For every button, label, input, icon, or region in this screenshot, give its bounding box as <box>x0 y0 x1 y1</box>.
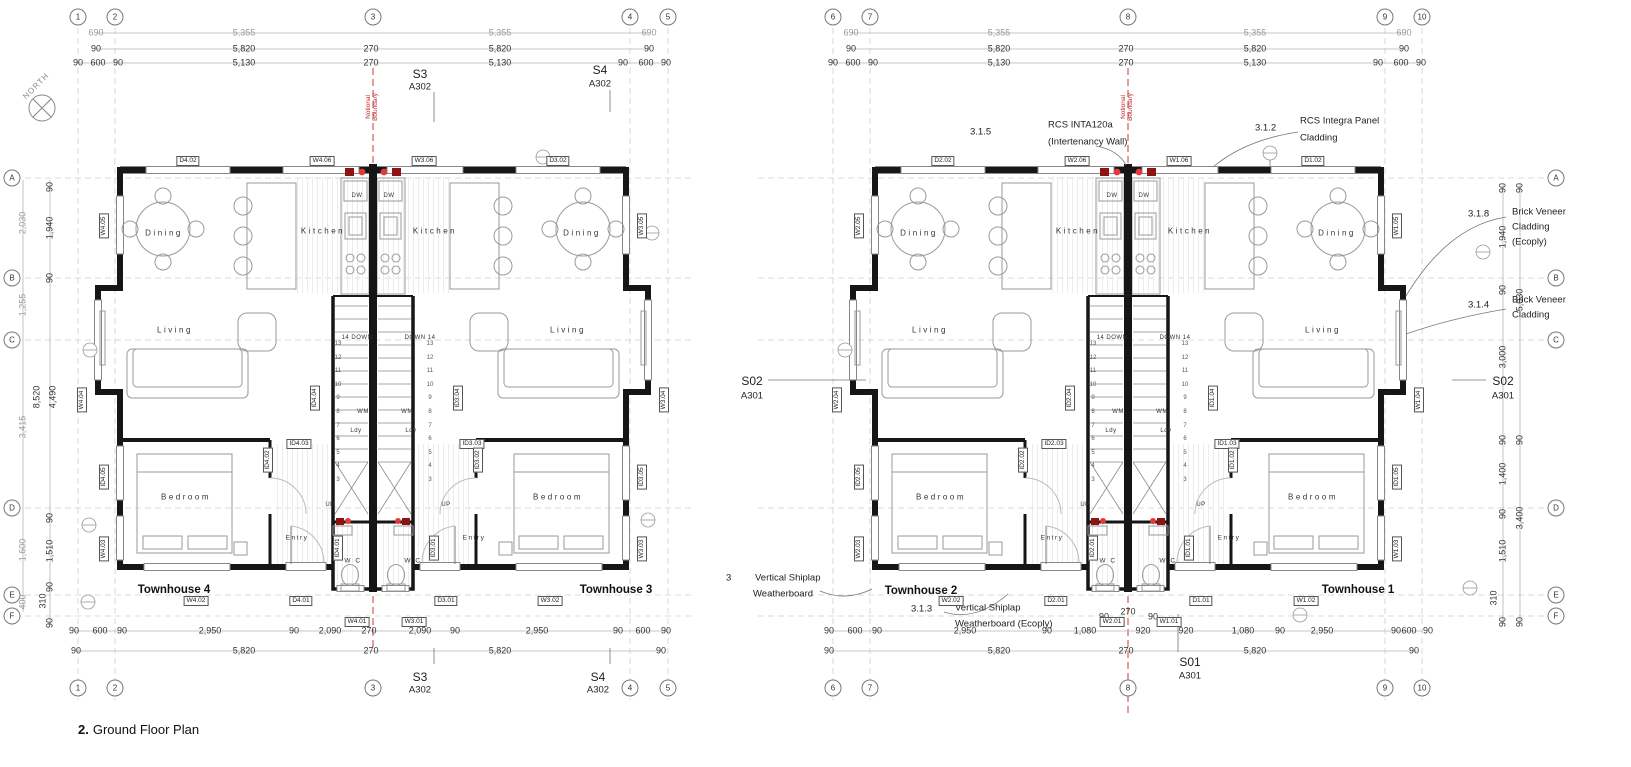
stair-tread-number: 8 <box>333 409 343 415</box>
dim-label: 90 <box>1516 435 1525 445</box>
grid-letter-bubble: F <box>4 608 21 625</box>
grid-letter-bubble: C <box>4 332 21 349</box>
stair-tread-number: 12 <box>1088 355 1098 361</box>
dim-label: 5,355 <box>988 29 1011 38</box>
room-label-living: Living <box>1305 326 1341 335</box>
room-label-wc: W C <box>1159 558 1176 565</box>
grid-letter-bubble: D <box>4 500 21 517</box>
dim-label: 90 <box>613 627 623 636</box>
window-tag: W1.03 <box>1392 537 1402 562</box>
door-tag: ID4.01 <box>333 535 343 560</box>
stair-tread-number: 6 <box>1088 436 1098 442</box>
stair-tread-number: 13 <box>333 341 343 347</box>
boundary-line: Notional <box>1120 95 1127 119</box>
dim-label: 1,255 <box>19 294 28 317</box>
window-tag: W2.04 <box>832 388 842 413</box>
room-label-living: Living <box>912 326 948 335</box>
window-tag: W1.06 <box>1167 156 1192 166</box>
stair-tread-number: 7 <box>1088 423 1098 429</box>
dim-label: 90 <box>113 59 123 68</box>
window-tag: W3.06 <box>412 156 437 166</box>
townhouse-label: Townhouse 1 <box>1322 584 1395 596</box>
stair-direction-label: 14 DOWN <box>342 335 373 341</box>
room-label-entry: Entry <box>1218 535 1241 542</box>
window-tag: W4.06 <box>310 156 335 166</box>
dim-label: 90 <box>846 45 856 54</box>
grid-bubble: 6 <box>825 9 842 26</box>
grid-bubble: 4 <box>622 680 639 697</box>
window-tag: W2.06 <box>1065 156 1090 166</box>
stair-tread-number: 9 <box>333 395 343 401</box>
door-tag: ID1.05 <box>1392 464 1402 489</box>
dim-label: 90 <box>450 627 460 636</box>
dim-label: 920 <box>1178 627 1193 636</box>
door-tag: ID2.02 <box>1018 447 1028 472</box>
annotation-ref: 3.1.3 <box>911 604 932 615</box>
dim-label: 90 <box>289 627 299 636</box>
door-tag: ID2.03 <box>1041 439 1066 449</box>
annotation-text: RCS Integra Panel <box>1300 116 1379 127</box>
stair-tread-number: 8 <box>425 409 435 415</box>
grid-bubble: 1 <box>70 9 87 26</box>
window-tag: W1.05 <box>1392 214 1402 239</box>
dim-label: 600 <box>847 627 862 636</box>
section-sheet: A302 <box>589 79 611 90</box>
room-label-dining: Dining <box>900 229 938 238</box>
door-tag: ID1.02 <box>1228 447 1238 472</box>
dim-label: 90 <box>661 627 671 636</box>
stair-tread-number: 9 <box>425 395 435 401</box>
dim-label: 90 <box>824 627 834 636</box>
section-marker: S02 <box>1492 374 1513 388</box>
stair-tread-number: 8 <box>1180 409 1190 415</box>
window-tag: W2.05 <box>854 214 864 239</box>
window-tag: W3.05 <box>637 214 647 239</box>
room-label-laundry: Ldy <box>1105 428 1116 434</box>
appliance-label-dw: DW <box>352 193 363 199</box>
section-marker: S3 <box>413 67 428 81</box>
dim-label: 600 <box>90 59 105 68</box>
window-tag: W4.02 <box>184 596 209 606</box>
stair-tread-number: 9 <box>1180 395 1190 401</box>
appliance-label-wm: WM <box>401 409 413 415</box>
door-tag: ID4.04 <box>310 385 320 410</box>
window-tag: W3.04 <box>659 388 669 413</box>
grid-letter-bubble: D <box>1548 500 1565 517</box>
appliance-label-dw: DW <box>384 193 395 199</box>
dim-label: 90 <box>69 627 79 636</box>
stair-tread-numbers: 131211109876543 <box>333 341 343 483</box>
dim-label: 90 <box>91 45 101 54</box>
section-sheet: A302 <box>409 82 431 93</box>
townhouse-label: Townhouse 4 <box>138 584 211 596</box>
stair-tread-number: 10 <box>425 382 435 388</box>
door-tag: D3.02 <box>546 156 569 166</box>
grid-bubble: 3 <box>365 9 382 26</box>
appliance-label-wm: WM <box>357 409 369 415</box>
dim-label: 2,950 <box>526 627 549 636</box>
grid-bubble: 2 <box>107 9 124 26</box>
dim-label: 270 <box>1118 59 1133 68</box>
stair-tread-number: 11 <box>333 368 343 374</box>
stair-tread-number: 3 <box>1180 477 1190 483</box>
annotation-text: Weatherboard <box>753 589 813 600</box>
room-label-bedroom: Bedroom <box>1288 493 1338 502</box>
dim-label: 270 <box>363 59 378 68</box>
dim-label: 5,130 <box>988 59 1011 68</box>
dim-label: 90 <box>1373 59 1383 68</box>
room-label-entry: Entry <box>1041 535 1064 542</box>
dim-label: 270 <box>363 45 378 54</box>
section-sheet: A301 <box>1492 391 1514 402</box>
grid-bubble: 1 <box>70 680 87 697</box>
dim-label: 2,090 <box>319 627 342 636</box>
townhouse-label: Townhouse 3 <box>580 584 653 596</box>
grid-bubble: 8 <box>1120 680 1137 697</box>
door-tag: D4.01 <box>289 596 312 606</box>
dim-label: 1,080 <box>1074 627 1097 636</box>
annotation-text: Vertical Shiplap <box>755 573 820 584</box>
stair-tread-number: 6 <box>425 436 435 442</box>
appliance-label-dw: DW <box>1139 193 1150 199</box>
stair-tread-number: 9 <box>1088 395 1098 401</box>
stair-tread-number: 6 <box>333 436 343 442</box>
door-tag: D2.02 <box>931 156 954 166</box>
dim-label: 600 <box>845 59 860 68</box>
dim-label: 90 <box>1416 59 1426 68</box>
dim-label: 90 <box>46 273 55 283</box>
section-sheet: A302 <box>409 685 431 696</box>
annotation-text: Cladding <box>1512 222 1550 233</box>
stair-tread-number: 6 <box>1180 436 1190 442</box>
room-label-wc: W C <box>404 558 421 565</box>
stair-tread-number: 4 <box>1088 463 1098 469</box>
room-label-laundry: Ldy <box>405 428 416 434</box>
stair-tread-number: 12 <box>333 355 343 361</box>
room-label-dining: Dining <box>563 229 601 238</box>
room-label-kitchen: Kitchen <box>1168 227 1212 236</box>
grid-letter-bubble: E <box>1548 587 1565 604</box>
room-label-dining: Dining <box>1318 229 1356 238</box>
window-tag: W1.02 <box>1294 596 1319 606</box>
room-label-bedroom: Bedroom <box>916 493 966 502</box>
stair-tread-numbers: 131211109876543 <box>425 341 435 483</box>
stair-tread-number: 3 <box>333 477 343 483</box>
window-tag: W2.03 <box>854 537 864 562</box>
grid-bubble: 3 <box>365 680 382 697</box>
boundary-line: Notional <box>365 95 372 119</box>
stair-up-label: UP <box>325 502 334 508</box>
section-marker: S02 <box>741 374 762 388</box>
dim-label: 5,820 <box>233 45 256 54</box>
dim-label: 600 <box>1393 59 1408 68</box>
dim-label: 5,820 <box>988 647 1011 656</box>
grid-bubble: 7 <box>862 9 879 26</box>
annotation-ref: 3 <box>726 573 731 584</box>
dim-label: 8,520 <box>33 386 42 409</box>
window-tag: W3.01 <box>402 617 427 627</box>
stair-tread-number: 3 <box>1088 477 1098 483</box>
dim-label: 5,820 <box>988 45 1011 54</box>
window-tag: W4.04 <box>77 388 87 413</box>
door-tag: ID3.05 <box>637 464 647 489</box>
dim-label: 90 <box>828 59 838 68</box>
stair-tread-number: 12 <box>1180 355 1190 361</box>
grid-bubble: 2 <box>107 680 124 697</box>
dim-label: 5,820 <box>233 647 256 656</box>
floor-plan-sheet: 1 2 3 4 5 6 7 8 9 10 1 2 3 4 5 6 7 8 9 1… <box>0 0 1631 767</box>
room-label-bedroom: Bedroom <box>161 493 211 502</box>
dim-label: 270 <box>363 647 378 656</box>
dim-label: 3,415 <box>19 416 28 439</box>
dim-label: 5,130 <box>489 59 512 68</box>
section-marker: S4 <box>591 670 606 684</box>
door-tag: D2.01 <box>1044 596 1067 606</box>
grid-letter-bubble: B <box>1548 270 1565 287</box>
dim-label: 90 <box>661 59 671 68</box>
dim-label: 5,355 <box>489 29 512 38</box>
dim-label: 1,080 <box>1232 627 1255 636</box>
grid-bubble: 9 <box>1377 680 1394 697</box>
dim-label: 90 <box>1499 617 1508 627</box>
room-label-kitchen: Kitchen <box>413 227 457 236</box>
dim-label: 5,130 <box>1244 59 1267 68</box>
dim-label: 90 <box>46 513 55 523</box>
section-marker: S3 <box>413 670 428 684</box>
stair-tread-number: 5 <box>333 450 343 456</box>
dim-label: 5,820 <box>1244 45 1267 54</box>
annotation-text: Cladding <box>1512 310 1550 321</box>
dim-label: 2,090 <box>409 627 432 636</box>
stair-tread-number: 11 <box>1088 368 1098 374</box>
door-tag: ID1.04 <box>1208 385 1218 410</box>
annotation-ref: 3.1.4 <box>1468 300 1489 311</box>
dim-label: 2,030 <box>19 212 28 235</box>
boundary-line: Boundary <box>1127 93 1134 121</box>
dim-label: 90 <box>71 647 81 656</box>
window-tag: W1.04 <box>1414 388 1424 413</box>
grid-bubble: 4 <box>622 9 639 26</box>
door-tag: ID2.04 <box>1065 385 1075 410</box>
stair-tread-number: 7 <box>1180 423 1190 429</box>
door-tag: ID4.02 <box>263 447 273 472</box>
dim-label: 90 <box>1499 183 1508 193</box>
dim-label: 90 <box>1423 627 1433 636</box>
dim-label: 90 <box>46 618 55 628</box>
window-tag: W3.02 <box>538 596 563 606</box>
room-label-kitchen: Kitchen <box>301 227 345 236</box>
grid-bubble: 7 <box>862 680 879 697</box>
window-tag: W4.05 <box>99 214 109 239</box>
dim-label: 90 <box>46 582 55 592</box>
dim-label: 90 <box>1275 627 1285 636</box>
annotation-text: Cladding <box>1300 133 1338 144</box>
stair-tread-number: 13 <box>1180 341 1190 347</box>
section-marker: S01 <box>1179 655 1200 669</box>
stair-tread-number: 5 <box>1180 450 1190 456</box>
annotation-text: RCS INTA120a <box>1048 120 1113 131</box>
dim-label: 1,940 <box>1499 226 1508 249</box>
dim-label: 400 <box>19 594 28 609</box>
annotation-text: Weatherboard (Ecoply) <box>955 619 1053 630</box>
dim-label: 2,950 <box>1311 627 1334 636</box>
dim-label: 270 <box>1118 647 1133 656</box>
grid-bubble: 5 <box>660 9 677 26</box>
room-label-laundry: Ldy <box>1160 428 1171 434</box>
room-label-laundry: Ldy <box>350 428 361 434</box>
dim-label: 3,000 <box>1499 346 1508 369</box>
sheet-title: 2.Ground Floor Plan <box>78 722 199 737</box>
grid-bubble: 10 <box>1414 680 1431 697</box>
dim-label: 90 <box>1391 627 1401 636</box>
dim-label: 3,400 <box>1516 507 1525 530</box>
room-label-dining: Dining <box>145 229 183 238</box>
stair-tread-number: 11 <box>1180 368 1190 374</box>
dim-label: 270 <box>1120 608 1135 617</box>
stair-tread-numbers: 131211109876543 <box>1180 341 1190 483</box>
door-tag: ID3.01 <box>429 535 439 560</box>
door-tag: D1.02 <box>1301 156 1324 166</box>
door-tag: D1.01 <box>1189 596 1212 606</box>
stair-tread-number: 10 <box>1180 382 1190 388</box>
stair-tread-number: 4 <box>1180 463 1190 469</box>
stair-tread-number: 8 <box>1088 409 1098 415</box>
appliance-label-wm: WM <box>1156 409 1168 415</box>
sheet-title-number: 2. <box>78 722 89 737</box>
stair-tread-number: 4 <box>333 463 343 469</box>
dim-label: 600 <box>635 627 650 636</box>
dim-label: 90 <box>1516 183 1525 193</box>
dim-label: 600 <box>92 627 107 636</box>
grid-bubble: 5 <box>660 680 677 697</box>
dim-label: 90 <box>117 627 127 636</box>
door-tag: ID3.02 <box>473 447 483 472</box>
dim-label: 690 <box>88 29 103 38</box>
stair-tread-number: 7 <box>333 423 343 429</box>
annotation-ref: 3.1.2 <box>1255 123 1276 134</box>
room-label-kitchen: Kitchen <box>1056 227 1100 236</box>
stair-tread-number: 3 <box>425 477 435 483</box>
window-tag: W4.01 <box>345 617 370 627</box>
dim-label: 90 <box>1499 509 1508 519</box>
dim-label: 2,950 <box>199 627 222 636</box>
dim-label: 1,510 <box>1499 540 1508 563</box>
stair-tread-number: 11 <box>425 368 435 374</box>
north-arrow-icon <box>29 95 55 121</box>
dim-label: 90 <box>1499 435 1508 445</box>
stair-tread-number: 7 <box>425 423 435 429</box>
dim-label: 90 <box>644 45 654 54</box>
stair-tread-numbers: 131211109876543 <box>1088 341 1098 483</box>
sheet-title-text: Ground Floor Plan <box>93 722 199 737</box>
window-tag: W4.03 <box>99 537 109 562</box>
dim-label: 690 <box>1396 29 1411 38</box>
dim-label: 690 <box>641 29 656 38</box>
dim-label: 90 <box>872 627 882 636</box>
door-tag: ID3.04 <box>453 385 463 410</box>
room-label-living: Living <box>550 326 586 335</box>
stair-tread-number: 4 <box>425 463 435 469</box>
dim-label: 90 <box>868 59 878 68</box>
room-label-bedroom: Bedroom <box>533 493 583 502</box>
grid-letter-bubble: A <box>1548 170 1565 187</box>
dim-label: 90 <box>1409 647 1419 656</box>
dim-label: 5,820 <box>1244 647 1267 656</box>
dim-label: 1,940 <box>46 217 55 240</box>
stair-tread-number: 10 <box>1088 382 1098 388</box>
annotation-ref: 3.1.8 <box>1468 209 1489 220</box>
room-label-entry: Entry <box>463 535 486 542</box>
dim-label: 1,510 <box>46 540 55 563</box>
stair-tread-number: 5 <box>425 450 435 456</box>
dim-label: 5,820 <box>489 647 512 656</box>
stair-up-label: UP <box>1080 502 1089 508</box>
grid-letter-bubble: A <box>4 170 21 187</box>
room-label-wc: W C <box>1099 558 1116 565</box>
dim-label: 90 <box>1399 45 1409 54</box>
stair-tread-number: 10 <box>333 382 343 388</box>
dim-label: 5,355 <box>233 29 256 38</box>
door-tag: ID4.05 <box>99 464 109 489</box>
door-tag: D3.01 <box>434 596 457 606</box>
room-label-wc: W C <box>344 558 361 565</box>
annotation-text: Brick Veneer <box>1512 207 1566 218</box>
window-tag: W1.01 <box>1157 617 1182 627</box>
annotation-text: Brick Veneer <box>1512 295 1566 306</box>
stair-tread-number: 5 <box>1088 450 1098 456</box>
dim-label: 90 <box>1516 617 1525 627</box>
dim-label: 5,130 <box>233 59 256 68</box>
door-tag: ID1.01 <box>1184 535 1194 560</box>
stair-tread-number: 13 <box>1088 341 1098 347</box>
window-tag: W2.01 <box>1100 617 1125 627</box>
dim-label: 90 <box>656 647 666 656</box>
section-sheet: A301 <box>1179 671 1201 682</box>
dim-label: 600 <box>1401 627 1416 636</box>
dim-label: 90 <box>618 59 628 68</box>
door-tag: ID2.05 <box>854 464 864 489</box>
window-tag: W3.03 <box>637 537 647 562</box>
annotation-ref: 3.1.5 <box>970 127 991 138</box>
grid-letter-bubble: B <box>4 270 21 287</box>
grid-letter-bubble: F <box>1548 608 1565 625</box>
dim-label: 5,355 <box>1244 29 1267 38</box>
appliance-label-dw: DW <box>1107 193 1118 199</box>
annotation-text: (Ecoply) <box>1512 237 1547 248</box>
dim-label: 310 <box>1490 590 1499 605</box>
boundary-label: NotionalBoundary <box>365 93 379 121</box>
dim-label: 1,400 <box>1499 463 1508 486</box>
dim-label: 4,490 <box>49 386 58 409</box>
section-sheet: A301 <box>741 391 763 402</box>
dim-label: 690 <box>843 29 858 38</box>
stair-up-label: UP <box>441 502 450 508</box>
room-label-living: Living <box>157 326 193 335</box>
stair-tread-number: 12 <box>425 355 435 361</box>
section-sheet: A302 <box>587 685 609 696</box>
appliance-label-wm: WM <box>1112 409 1124 415</box>
dim-label: 310 <box>39 593 48 608</box>
section-marker: S4 <box>593 63 608 77</box>
boundary-line: Boundary <box>372 93 379 121</box>
dim-label: 920 <box>1135 627 1150 636</box>
dim-label: 90 <box>73 59 83 68</box>
dim-label: 90 <box>1499 285 1508 295</box>
door-tag: ID4.03 <box>286 439 311 449</box>
annotation-text: (Intertenancy Wall) <box>1048 137 1127 148</box>
door-tag: ID2.01 <box>1088 535 1098 560</box>
grid-bubble: 6 <box>825 680 842 697</box>
